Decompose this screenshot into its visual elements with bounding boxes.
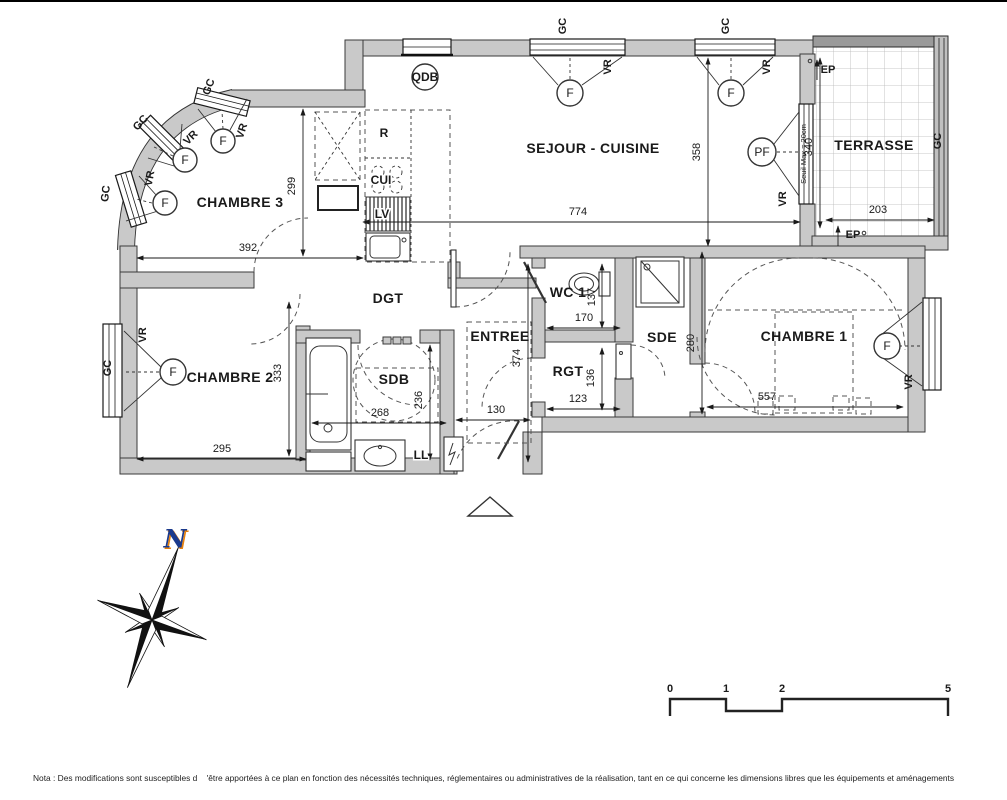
dim-wc-width: 170: [575, 312, 593, 324]
scale-bar: 0 1 2 5: [667, 683, 951, 716]
sdb-cabinet: [306, 452, 351, 471]
label-qdb: QDB: [412, 70, 439, 84]
dim-sejour-height: 358: [691, 143, 703, 161]
scale-0: 0: [667, 683, 673, 695]
dim-entree-height: 374: [511, 349, 523, 367]
window-qdb: [401, 39, 453, 55]
vr-tag-ch3a: VR: [143, 170, 157, 187]
f-circle-chambre3b: F: [181, 153, 188, 167]
bathroom-sdb: [306, 337, 463, 471]
f-circle-chambre3a: F: [161, 196, 168, 210]
f-circle-chambre2: F: [169, 365, 176, 379]
gc-tag-1: GC: [557, 18, 569, 35]
room-wc1: WC 1: [550, 284, 587, 300]
scale-1: 1: [723, 683, 729, 695]
vr-tag-ch3c: VR: [234, 122, 250, 140]
nota-text: Nota : Des modifications sont susceptibl…: [33, 752, 993, 800]
floor-plan-drawing: 774 358 340 203 392 299 295 333 268 236 …: [0, 0, 1007, 800]
nota-line-1: Nota : Des modifications sont susceptibl…: [33, 773, 993, 784]
f-circle-sejour2: F: [727, 86, 734, 100]
vr-tag-1: VR: [602, 59, 614, 74]
dim-sejour-width: 774: [569, 206, 587, 218]
dim-ch1-width: 557: [758, 391, 776, 403]
north-label: N: [163, 525, 188, 554]
room-entree: ENTREE: [470, 328, 529, 344]
vr-tag-chambre1: VR: [903, 374, 915, 389]
dgt-door-leaf: [451, 250, 456, 307]
gc-tag-terrasse: GC: [932, 133, 944, 150]
room-sde: SDE: [647, 329, 677, 345]
qdb-symbol: QDB: [412, 64, 439, 90]
room-chambre1: CHAMBRE 1: [761, 328, 848, 344]
terrasse-top-edge: [813, 36, 948, 47]
dim-ch3-height: 299: [286, 177, 298, 195]
dim-ch2-height: 333: [272, 364, 284, 382]
label-dishwasher: LV: [375, 207, 389, 221]
vr-tag-ch3b: VR: [181, 128, 200, 147]
pf-circle-terrasse: PF: [754, 145, 769, 159]
dim-wc-height: 137: [586, 288, 598, 306]
ep-tag-bottom: EP: [846, 229, 861, 241]
label-washer: LL: [414, 448, 429, 462]
window-chambre1: [923, 298, 941, 390]
f-circle-sejour1: F: [566, 86, 573, 100]
window-sejour-2: [695, 39, 775, 55]
dim-ch3-width: 392: [239, 242, 257, 254]
room-dgt: DGT: [373, 290, 404, 306]
ep-tag-top: EP: [821, 64, 836, 76]
dim-rgt-height: 136: [585, 369, 597, 387]
dim-rgt-width: 123: [569, 393, 587, 405]
room-chambre3: CHAMBRE 3: [197, 194, 284, 210]
gc-tag-ch3a: GC: [99, 185, 113, 203]
compass-rose: N N: [73, 525, 233, 708]
duct-box: [318, 186, 358, 210]
room-terrasse: TERRASSE: [834, 137, 913, 153]
dim-sdb-width: 268: [371, 407, 389, 419]
window-sejour-1: [530, 39, 625, 55]
scale-5: 5: [945, 683, 951, 695]
room-sdb: SDB: [379, 371, 410, 387]
sde-door-leaf: [616, 344, 631, 379]
dim-sdb-height: 236: [413, 391, 425, 409]
kitchen-sink: [366, 233, 410, 261]
vr-tag-chambre2: VR: [137, 327, 149, 342]
gc-tag-chambre2: GC: [102, 360, 114, 377]
electrical-panel: [444, 437, 463, 471]
room-chambre2: CHAMBRE 2: [187, 369, 274, 385]
dim-terrasse-width: 203: [869, 204, 887, 216]
dim-ch2-width: 295: [213, 443, 231, 455]
scale-2: 2: [779, 683, 785, 695]
vr-tag-2: VR: [761, 59, 773, 74]
threshold-note: Seuil Max = 20cm: [799, 124, 808, 184]
dim-sde-height: 280: [685, 334, 697, 352]
gc-tag-2: GC: [720, 18, 732, 35]
room-sejour-cuisine: SEJOUR - CUISINE: [526, 140, 659, 156]
floor-plan-page: 774 358 340 203 392 299 295 333 268 236 …: [0, 0, 1007, 800]
f-circle-chambre1: F: [883, 339, 890, 353]
label-refrigerator: R: [380, 126, 389, 140]
vr-tag-pf: VR: [777, 191, 789, 206]
label-cooktop: CUI: [371, 173, 392, 187]
f-circle-chambre3c: F: [219, 134, 226, 148]
dim-entree-width: 130: [487, 404, 505, 416]
entrance-door-leaf: [498, 421, 519, 459]
page-border-top: [0, 0, 1007, 2]
entrance-marker: [468, 497, 512, 516]
room-rgt: RGT: [553, 363, 584, 379]
